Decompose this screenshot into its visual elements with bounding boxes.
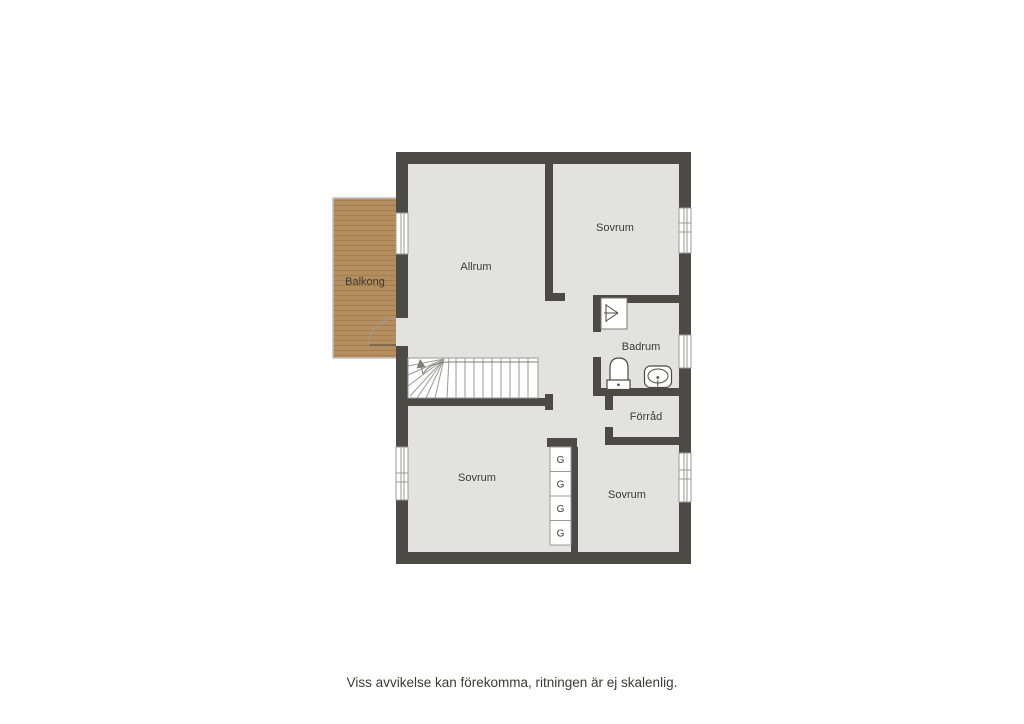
wall-badrum-west-upper (593, 295, 601, 332)
room-label-sovrum-top-right: Sovrum (596, 222, 634, 234)
window-sovrum-bl-west (396, 447, 408, 500)
toilet-flush-dot (617, 384, 620, 387)
window-sovrum-tr-east (679, 208, 691, 253)
sink (645, 366, 672, 388)
wall-allrum-sovrum (545, 164, 553, 301)
room-label-allrum: Allrum (460, 261, 491, 273)
wall-allrum-sovrum-stub (545, 293, 565, 301)
wall-forrad-south (605, 437, 679, 445)
wall-forrad-west-upper (605, 396, 613, 410)
wall-stairs-south (408, 398, 553, 406)
window-sovrum-br-east (679, 453, 691, 502)
balcony-door-opening (396, 318, 408, 346)
room-label-sovrum-bottom-left: Sovrum (458, 472, 496, 484)
wall-stairs-end-cap (545, 394, 553, 410)
disclaimer-text: Viss avvikelse kan förekomma, ritningen … (0, 675, 1024, 690)
toilet (607, 358, 630, 390)
shower (601, 298, 627, 329)
room-label-forrad: Förråd (630, 411, 662, 423)
closet-column: G G G G (550, 447, 571, 545)
floorplan-page: G G G G Balkong Allrum Sovrum Badrum För… (0, 0, 1024, 724)
closet-label: G (557, 504, 565, 515)
floorplan-canvas: G G G G Balkong Allrum Sovrum Badrum För… (0, 0, 1024, 724)
room-label-sovrum-bottom-right: Sovrum (608, 489, 646, 501)
room-label-badrum: Badrum (622, 341, 661, 353)
sink-tap-dot (656, 376, 659, 379)
wall-badrum-south (593, 388, 679, 396)
closet-label: G (557, 480, 565, 491)
window-badrum-east (679, 335, 691, 368)
window-allrum-west (396, 213, 408, 254)
room-label-balkong: Balkong (345, 276, 385, 288)
closet-label: G (557, 455, 565, 466)
wall-closet-top (547, 438, 577, 447)
toilet-bowl (610, 358, 628, 381)
closet-label: G (557, 529, 565, 540)
stairs (408, 358, 538, 398)
wall-closet-east (571, 447, 578, 552)
